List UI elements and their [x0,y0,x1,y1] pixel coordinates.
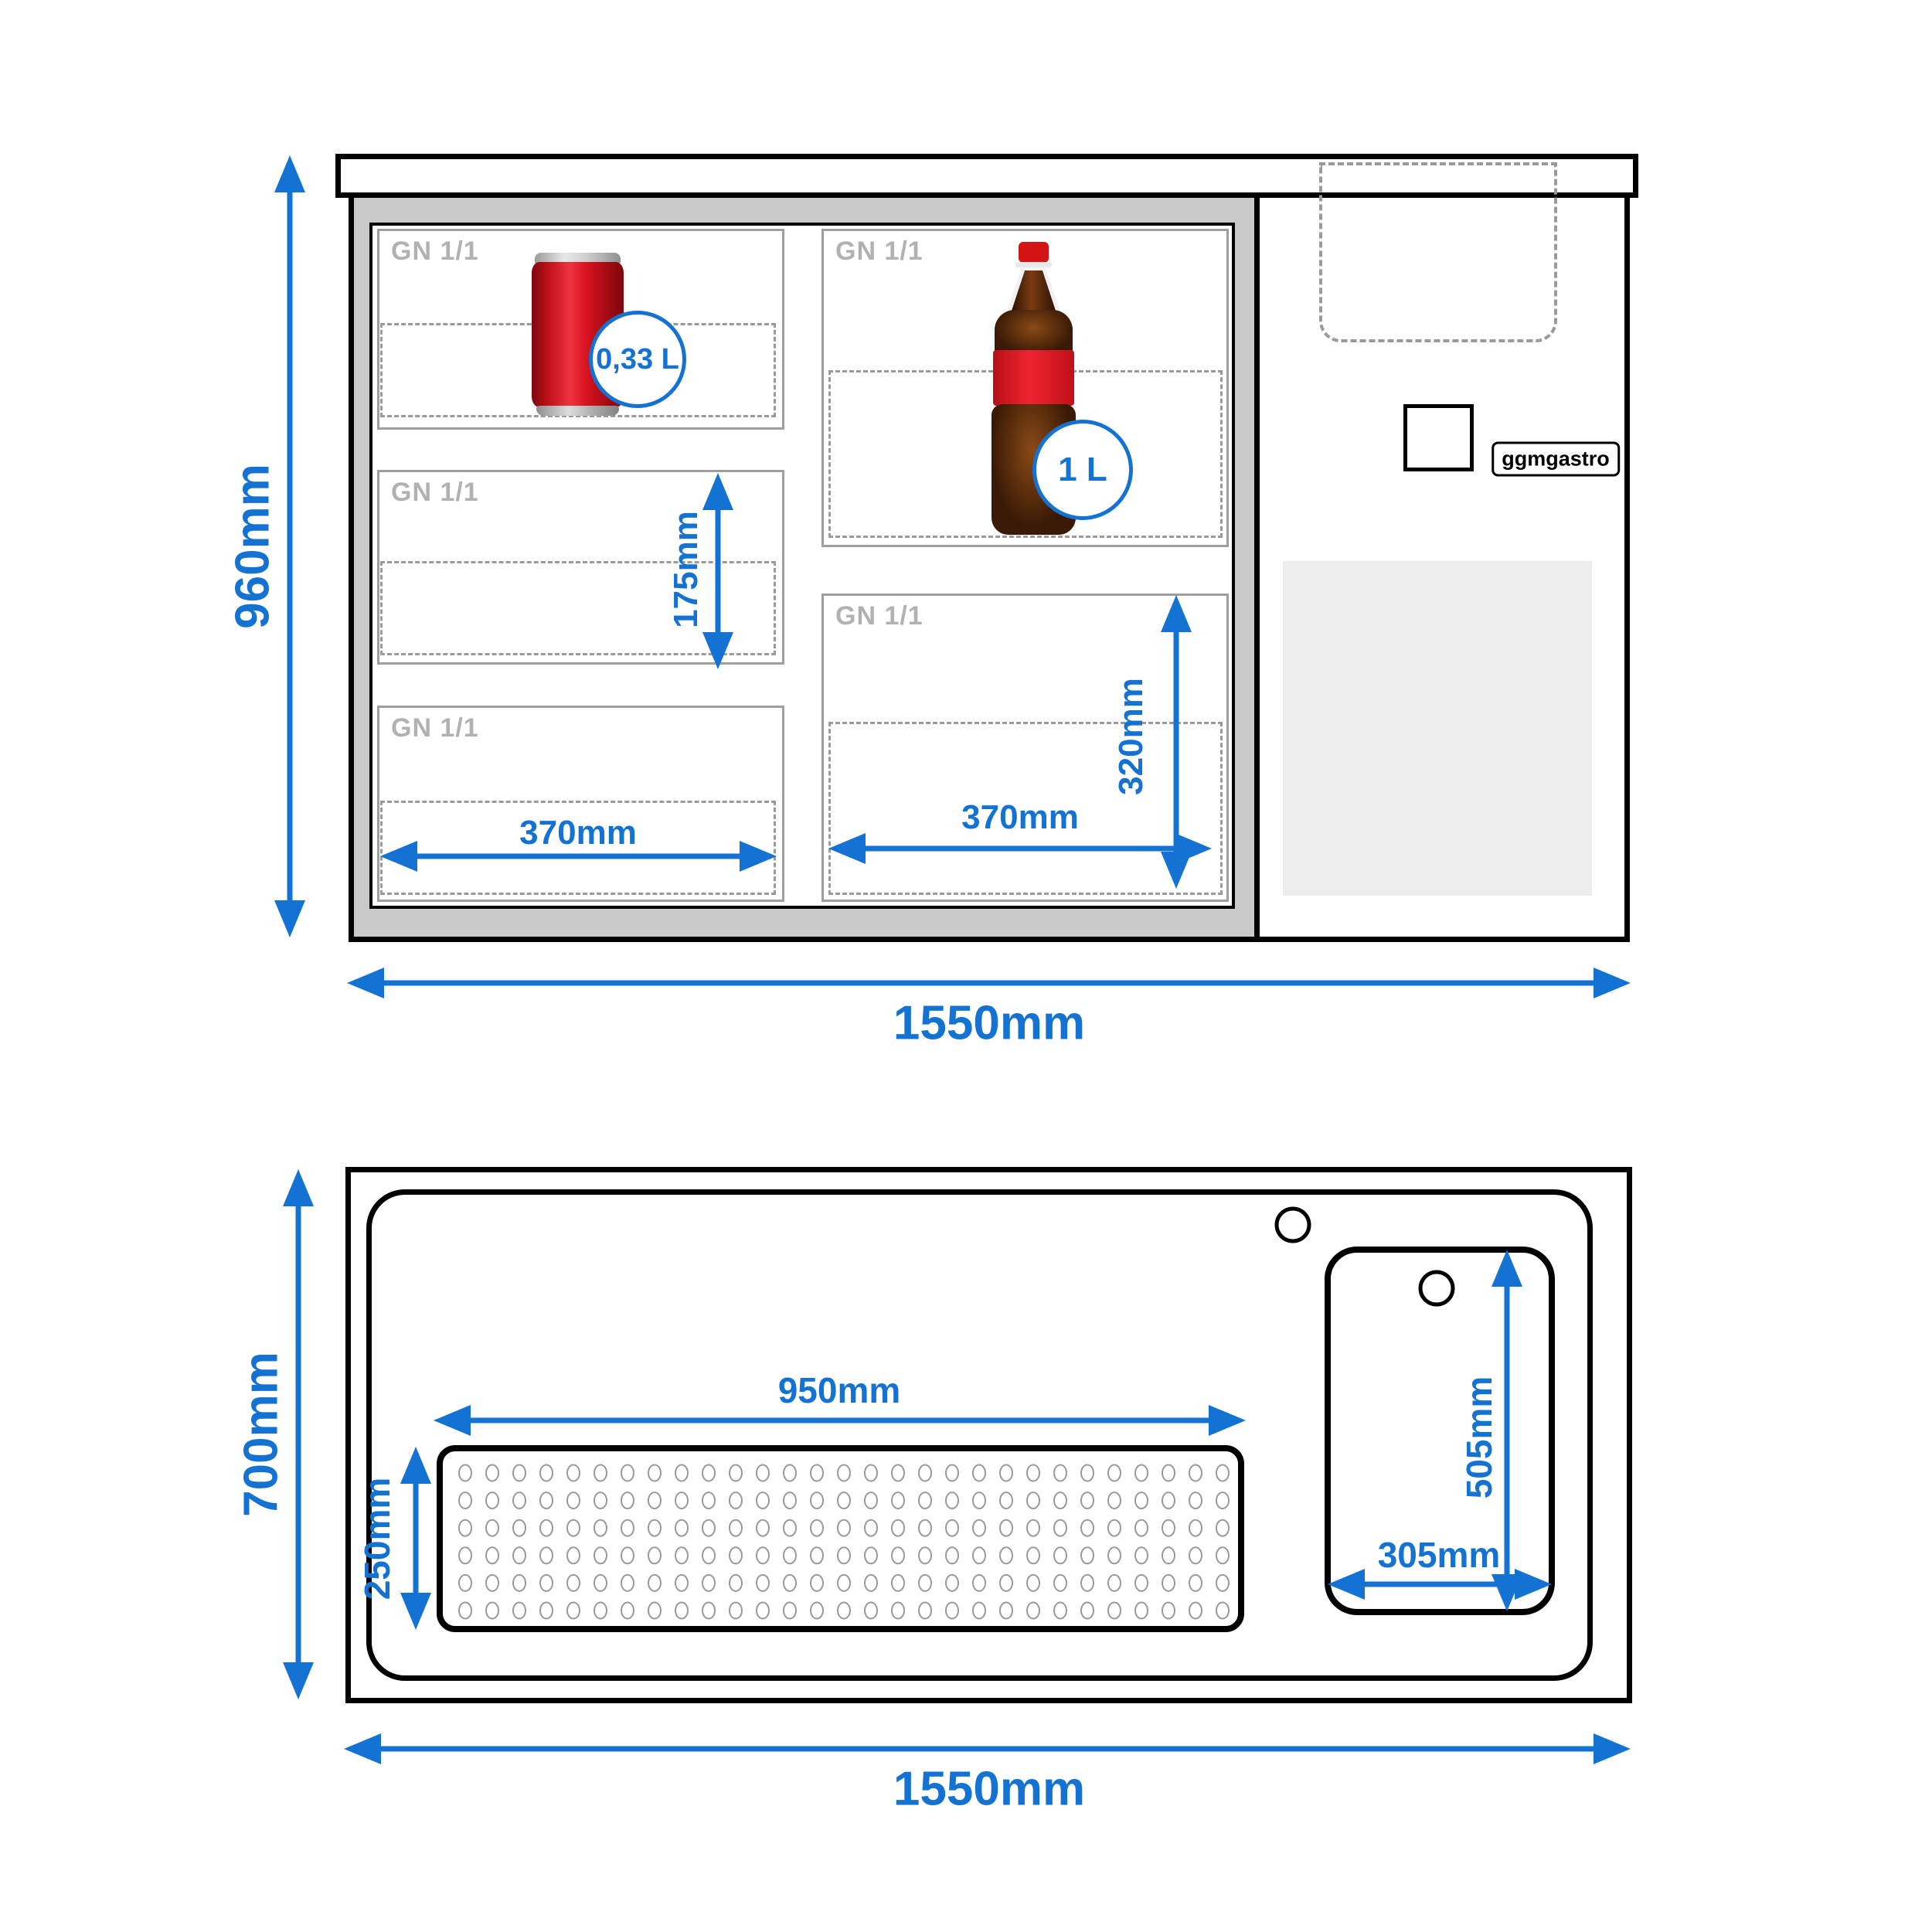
dim-arrow-shelf [702,473,733,669]
dim-arrow-height [274,155,305,937]
tap-hole-deck [1277,1209,1309,1241]
dim-arrow-depth [283,1169,314,1699]
dim-arrow-sink-d [1492,1250,1522,1611]
dimension-diagram: GN 1/1 GN 1/1 GN 1/1 GN 1/1 GN 1/1 0,33 … [0,0,1932,1932]
dim-arrow-plan-width [344,1733,1631,1764]
drainer-holes [459,1465,1229,1619]
dim-arrow-sink-w [1328,1569,1552,1600]
dim-arrow-drainer-w [434,1405,1246,1436]
diagram-overlay [0,0,1932,1932]
tap-hole-sink [1420,1272,1453,1304]
dim-arrow-pan-w-left [380,841,777,872]
dim-arrow-width [347,968,1631,998]
dim-arrow-pan-w-right [828,833,1212,864]
dim-arrow-drainer-d [400,1447,431,1630]
